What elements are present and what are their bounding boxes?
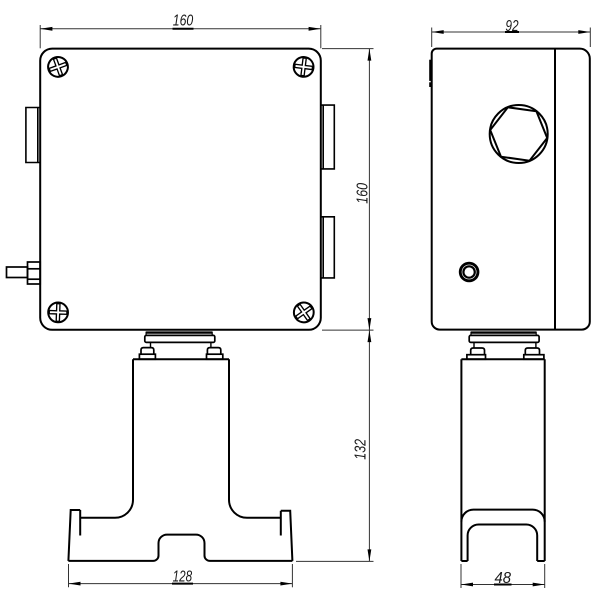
svg-text:160: 160: [173, 13, 194, 30]
svg-text:132: 132: [353, 439, 370, 460]
svg-text:160: 160: [354, 183, 371, 204]
